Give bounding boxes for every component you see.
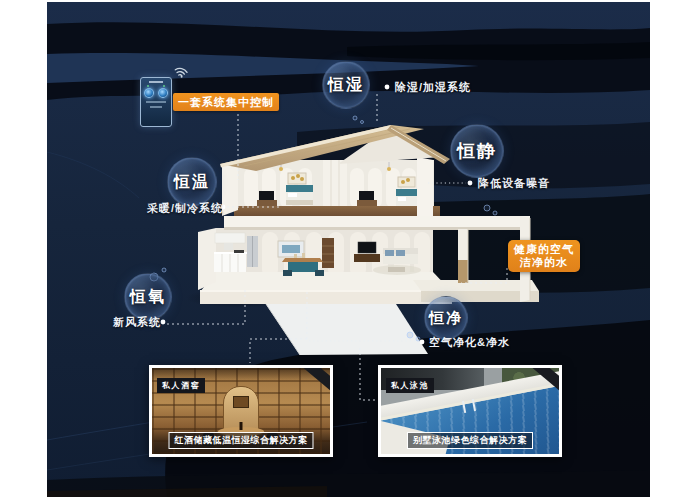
photo-caption: 红酒储藏低温恒湿综合解决方案: [169, 432, 314, 449]
note-temperature: 采暖/制冷系统: [147, 201, 223, 216]
wine-bottle: [240, 422, 243, 430]
note-humidity: 除湿/加湿系统: [395, 80, 471, 95]
photo-tag: 私人酒窖: [157, 378, 205, 393]
wine-wall-art: [233, 396, 249, 408]
bubble-purity: 恒净: [424, 296, 468, 340]
bubble-temperature-label: 恒温: [174, 172, 210, 193]
control-panel-title-bar: [149, 81, 163, 83]
poster-canvas: 私人酒窖 红酒储藏低温恒湿综合解决方案 私人泳池 别墅泳池绿色综合解决方案: [47, 2, 650, 497]
bubble-oxygen: 恒氧: [124, 273, 172, 321]
corner-ribbon: [303, 368, 330, 392]
bubble-quiet-label: 恒静: [457, 139, 497, 163]
bubble-humidity-label: 恒湿: [328, 75, 364, 96]
callout-box: 健康的空气 洁净的水: [508, 240, 580, 272]
note-quiet: 降低设备噪音: [478, 176, 550, 191]
note-oxygen: 新风系统: [113, 315, 161, 330]
control-knob: [144, 88, 154, 98]
wifi-icon: [172, 63, 190, 78]
photo-tag: 私人泳池: [386, 378, 434, 393]
callout-line1: 健康的空气: [508, 243, 580, 256]
control-panel-readout: [146, 101, 166, 103]
wine-cellar-image: 私人酒窖 红酒储藏低温恒湿综合解决方案: [152, 368, 330, 454]
bubble-temperature: 恒温: [167, 157, 217, 207]
control-panel-indicators: [141, 85, 171, 87]
control-panel-knobs: [141, 88, 171, 98]
control-knob: [158, 88, 168, 98]
pool-image: 私人泳池 别墅泳池绿色综合解决方案: [381, 368, 559, 454]
bubble-purity-label: 恒净: [429, 309, 463, 328]
control-panel-readout: [150, 106, 162, 108]
photo-caption: 别墅泳池绿色综合解决方案: [407, 432, 533, 449]
poster: 私人酒窖 红酒储藏低温恒湿综合解决方案 私人泳池 别墅泳池绿色综合解决方案: [0, 0, 700, 497]
wine-cellar-photo: 私人酒窖 红酒储藏低温恒湿综合解决方案: [149, 365, 333, 457]
control-panel: [140, 77, 172, 127]
callout-line2: 洁净的水: [508, 256, 580, 269]
bubble-humidity: 恒湿: [322, 61, 370, 109]
pool-photo: 私人泳池 别墅泳池绿色综合解决方案: [378, 365, 562, 457]
bubble-oxygen-label: 恒氧: [130, 287, 166, 308]
pool-ladder: [462, 399, 476, 413]
central-control-label: 一套系统集中控制: [173, 93, 279, 111]
bubble-quiet: 恒静: [450, 124, 504, 178]
note-purity: 空气净化&净水: [429, 335, 510, 350]
